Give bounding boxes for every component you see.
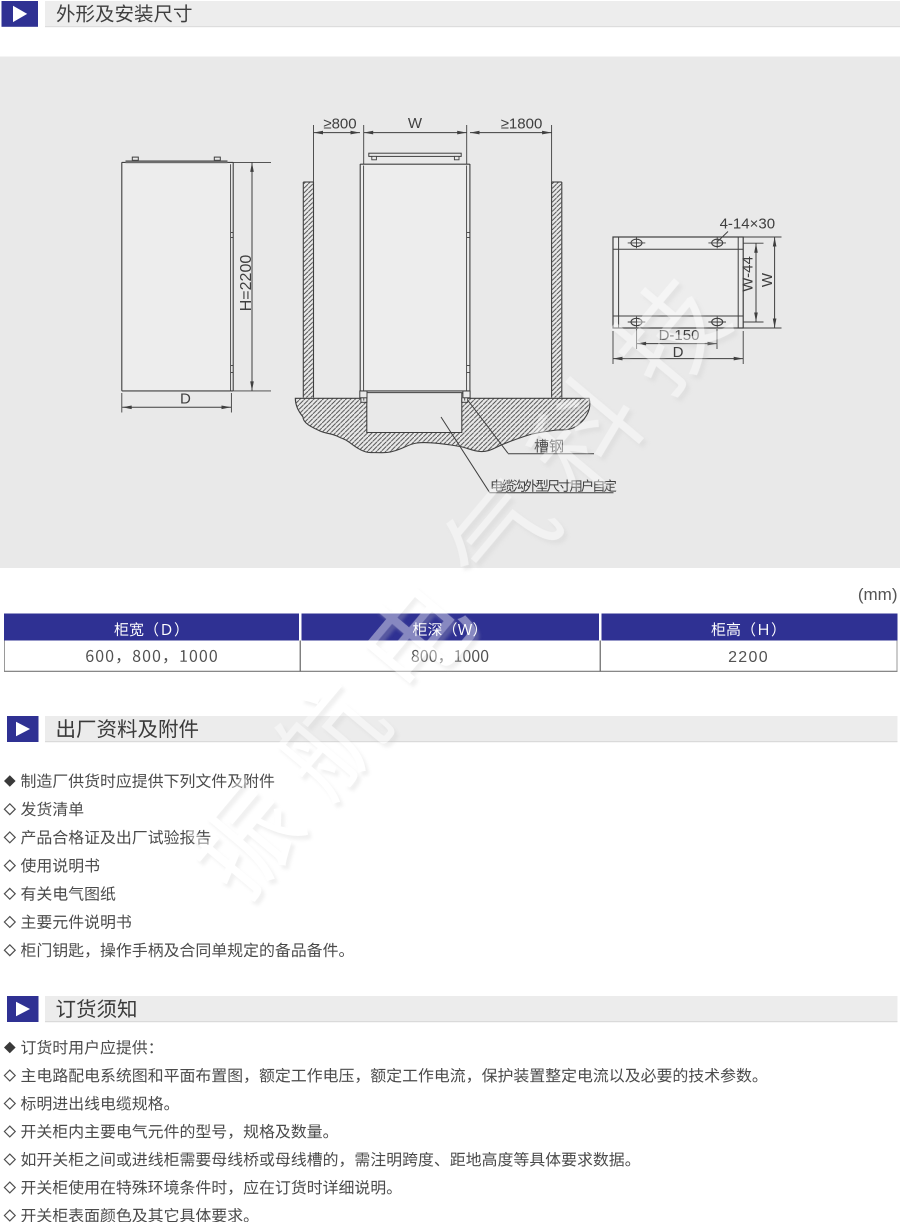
svg-text:D: D: [673, 344, 684, 361]
svg-text:2200: 2200: [728, 649, 769, 666]
svg-text:(mm): (mm): [858, 585, 898, 604]
svg-text:≥1800: ≥1800: [501, 116, 543, 133]
svg-text:D: D: [180, 391, 191, 408]
svg-text:W: W: [408, 115, 423, 132]
svg-text:4-14×30: 4-14×30: [720, 216, 775, 233]
svg-text:W: W: [759, 272, 776, 287]
svg-text:W-44: W-44: [739, 256, 756, 292]
svg-text:H=2200: H=2200: [238, 255, 255, 312]
svg-text:≥800: ≥800: [323, 116, 356, 133]
